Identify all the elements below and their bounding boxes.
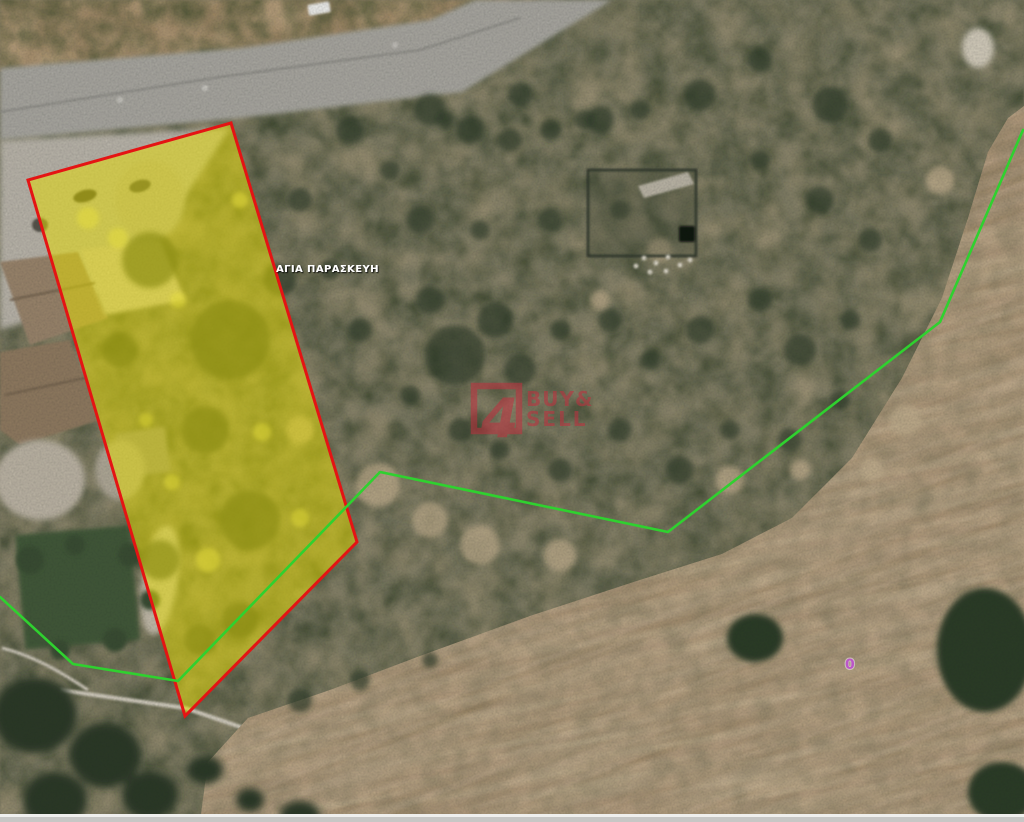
horizontal-scrollbar[interactable] [0, 814, 1024, 822]
satellite-map-canvas[interactable]: ΑΓΙΑ ΠΑΡΑΣΚΕΥΗ 4 BUY& SELL 0 [0, 0, 1024, 822]
watermark-text-line2: SELL [526, 407, 588, 431]
scrollbar-highlight [0, 814, 1024, 817]
scrollbar-track[interactable] [0, 817, 1024, 822]
watermark-symbol: 4 [480, 387, 519, 450]
zero-marker: 0 [845, 657, 855, 673]
place-label: ΑΓΙΑ ΠΑΡΑΣΚΕΥΗ [276, 264, 379, 275]
satellite-map-viewport[interactable]: ΑΓΙΑ ΠΑΡΑΣΚΕΥΗ 4 BUY& SELL 0 [0, 0, 1024, 822]
